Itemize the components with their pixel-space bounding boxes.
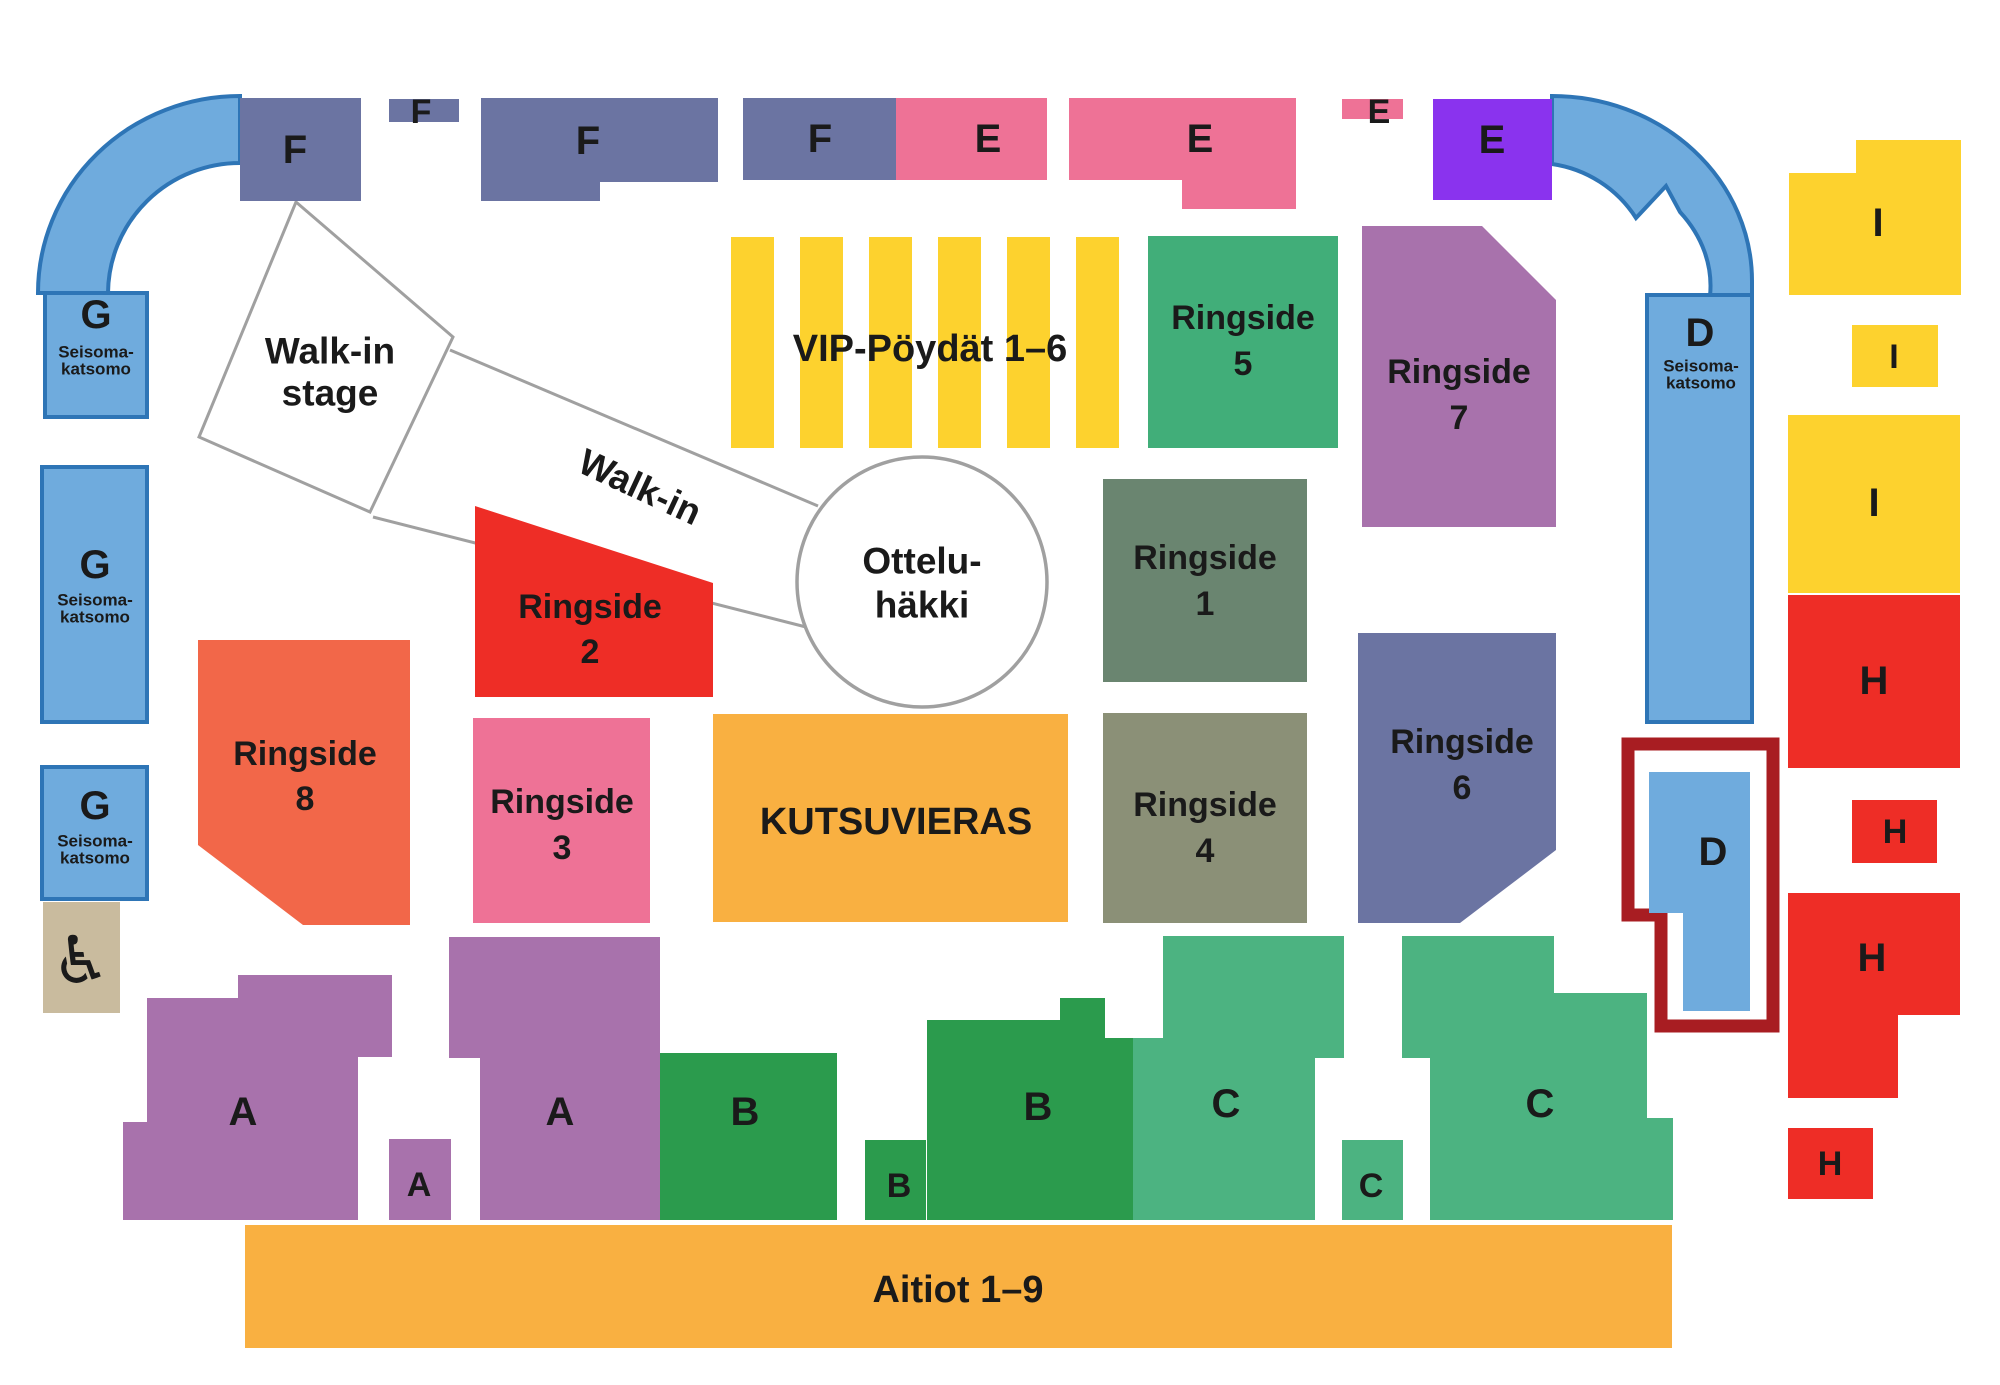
seating-map-svg: Walk-in stage Walk-in Ottelu- häkki G Se… (0, 0, 2000, 1385)
section-c-tab[interactable] (1342, 1140, 1403, 1220)
section-f4[interactable] (743, 98, 896, 180)
seating-map: Walk-in stage Walk-in Ottelu- häkki G Se… (0, 0, 2000, 1385)
section-h1[interactable] (1788, 595, 1960, 768)
stand-arc-top-left[interactable] (38, 96, 240, 293)
section-b1[interactable] (660, 1053, 837, 1220)
section-g2[interactable] (42, 467, 147, 722)
section-f2[interactable] (389, 99, 459, 122)
section-d-standing[interactable] (1647, 295, 1752, 722)
section-a-tab[interactable] (389, 1139, 451, 1220)
vip-stripe-2[interactable] (800, 237, 843, 448)
section-ringside-2[interactable] (475, 506, 713, 697)
section-c2[interactable] (1402, 936, 1673, 1220)
walkin-path-label: Walk-in (572, 441, 707, 533)
section-ringside-5[interactable] (1148, 236, 1338, 448)
section-h3[interactable] (1788, 893, 1960, 1098)
section-ringside-3[interactable] (473, 718, 650, 923)
vip-tables[interactable]: VIP-Pöydät 1–6 (731, 237, 1119, 448)
section-b-tab[interactable] (865, 1140, 926, 1220)
vip-stripe-6[interactable] (1076, 237, 1119, 448)
section-h2[interactable] (1852, 800, 1937, 863)
section-e3[interactable] (1342, 99, 1403, 119)
section-b2[interactable] (927, 998, 1133, 1220)
section-i3[interactable] (1788, 415, 1960, 593)
vip-stripe-3[interactable] (869, 237, 912, 448)
vip-stripe-5[interactable] (1007, 237, 1050, 448)
walk-in-stage (199, 202, 453, 512)
section-e2[interactable] (1069, 98, 1296, 209)
section-kutsuvieras[interactable] (713, 714, 1068, 922)
section-g3[interactable] (42, 767, 147, 899)
wheelchair-area[interactable]: ♿ (43, 902, 120, 1013)
section-ringside-4[interactable] (1103, 713, 1307, 923)
vip-stripe-1[interactable] (731, 237, 774, 448)
wheelchair-section[interactable] (43, 902, 120, 1013)
section-h4[interactable] (1788, 1128, 1873, 1199)
section-a2[interactable] (449, 937, 660, 1220)
fight-cage (797, 457, 1047, 707)
top-row-sections: F F F F E E E E (240, 93, 1552, 209)
stand-arc-top-right[interactable] (1552, 96, 1752, 296)
vip-stripe-4[interactable] (938, 237, 981, 448)
section-e1[interactable] (896, 98, 1047, 180)
d-highlight-group: D (1628, 744, 1773, 1026)
section-aitiot[interactable] (245, 1225, 1672, 1348)
section-g1[interactable] (45, 293, 147, 417)
section-ringside-6[interactable] (1358, 633, 1556, 923)
section-c1[interactable] (1133, 936, 1344, 1220)
section-ringside-8[interactable] (198, 640, 410, 925)
section-f1[interactable] (240, 98, 361, 201)
section-ringside-1[interactable] (1103, 479, 1307, 682)
lower-sections: A A A B B B C C C (123, 936, 1673, 1220)
section-i2[interactable] (1852, 325, 1938, 387)
section-f3[interactable] (481, 98, 718, 201)
section-a-main[interactable] (123, 975, 392, 1220)
right-column-sections: I I I H H H H (1788, 140, 1961, 1199)
section-i1[interactable] (1789, 140, 1961, 295)
section-ringside-7[interactable] (1362, 226, 1556, 527)
section-e4[interactable] (1433, 99, 1552, 200)
